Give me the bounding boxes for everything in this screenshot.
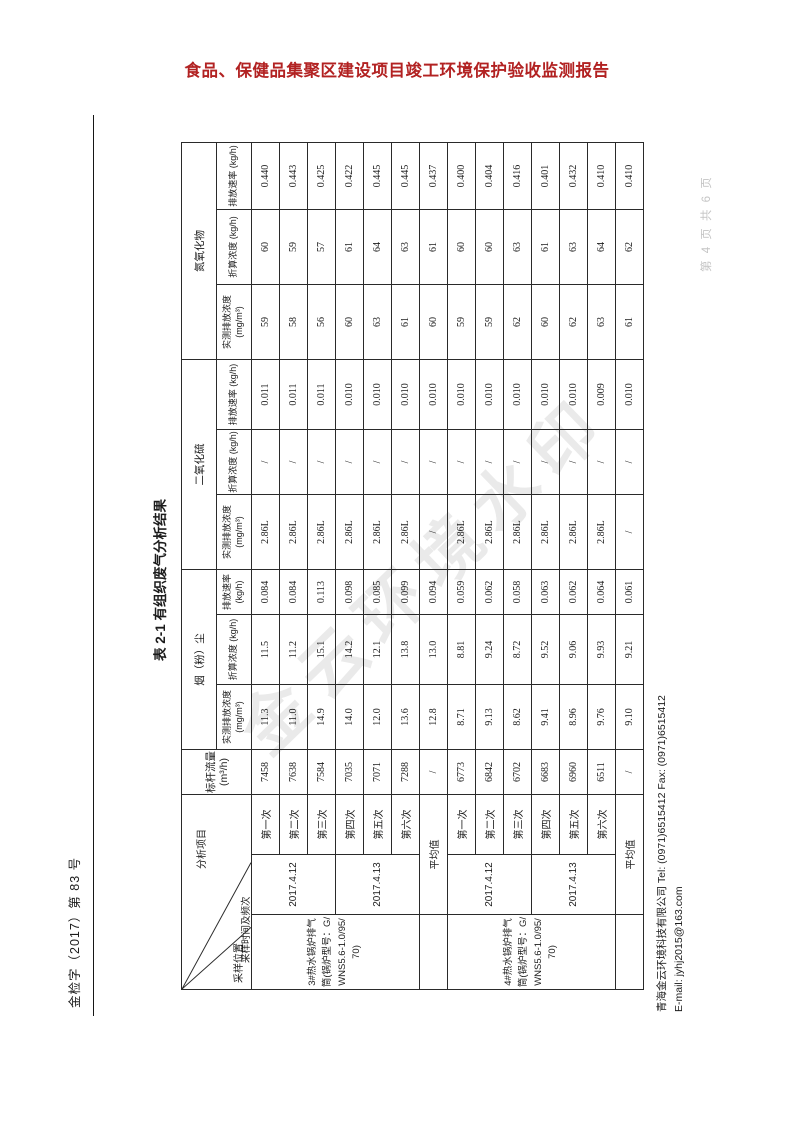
table-cell: 60 bbox=[420, 285, 448, 360]
location-empty-cell bbox=[420, 915, 448, 990]
table-cell: 9.93 bbox=[588, 615, 616, 685]
seq-cell: 第六次 bbox=[392, 795, 420, 855]
table-cell: 7288 bbox=[392, 750, 420, 795]
diag-label-time: 采样时间及频次 bbox=[238, 896, 252, 963]
table-cell: 59 bbox=[280, 210, 308, 285]
table-cell: 58 bbox=[280, 285, 308, 360]
table-cell: 0.063 bbox=[532, 570, 560, 615]
table-cell: / bbox=[308, 430, 336, 495]
table-cell: 0.062 bbox=[476, 570, 504, 615]
table-title: 表 2-1 有组织废气分析结果 bbox=[149, 140, 169, 1020]
rotated-landscape-content: 金检字（2017）第 83 号 表 2-1 有组织废气分析结果 采样位置 采样时… bbox=[57, 110, 737, 1020]
table-cell: 7638 bbox=[280, 750, 308, 795]
date-cell: 2017.4.13 bbox=[336, 855, 420, 915]
table-cell: 7458 bbox=[252, 750, 280, 795]
table-cell: 0.437 bbox=[420, 143, 448, 210]
diagonal-header-cell: 采样位置 采样时间及频次 分析项目 bbox=[182, 795, 252, 990]
table-cell: / bbox=[448, 430, 476, 495]
table-header-cell: 折算浓度 (kg/h) bbox=[217, 430, 252, 495]
table-cell: 0.084 bbox=[280, 570, 308, 615]
date-cell: 2017.4.12 bbox=[252, 855, 336, 915]
location-cell: 3#热水锅炉排气筒(锅炉型号：G/WNS5.6-1.0/95/70) bbox=[252, 915, 420, 990]
table-cell: 9.21 bbox=[616, 615, 644, 685]
footer-line-2: E-mail: jyhj2015@163.com bbox=[671, 695, 688, 1012]
table-cell: 2.86L bbox=[308, 495, 336, 570]
table-cell: 9.41 bbox=[532, 685, 560, 750]
table-cell: 0.113 bbox=[308, 570, 336, 615]
table-cell: 2.86L bbox=[532, 495, 560, 570]
table-cell: 7071 bbox=[364, 750, 392, 795]
table-cell: 11.0 bbox=[280, 685, 308, 750]
seq-cell: 第五次 bbox=[560, 795, 588, 855]
table-cell: 0.401 bbox=[532, 143, 560, 210]
table-cell: 0.010 bbox=[392, 360, 420, 430]
table-cell: 2.86L bbox=[280, 495, 308, 570]
table-cell: 61 bbox=[392, 285, 420, 360]
table-cell: / bbox=[336, 430, 364, 495]
table-cell: 6960 bbox=[560, 750, 588, 795]
table-cell: 57 bbox=[308, 210, 336, 285]
table-cell: 2.86L bbox=[252, 495, 280, 570]
table-cell: / bbox=[392, 430, 420, 495]
table-cell: 0.011 bbox=[252, 360, 280, 430]
location-empty-cell bbox=[616, 915, 644, 990]
table-cell: 61 bbox=[336, 210, 364, 285]
table-cell: 0.098 bbox=[336, 570, 364, 615]
table-cell: 8.96 bbox=[560, 685, 588, 750]
table-cell: 0.425 bbox=[308, 143, 336, 210]
table-cell: 0.064 bbox=[588, 570, 616, 615]
table-cell: 0.010 bbox=[336, 360, 364, 430]
table-header-group-nox: 氮氧化物 bbox=[182, 143, 217, 360]
table-cell: 63 bbox=[560, 210, 588, 285]
table-cell: 60 bbox=[252, 210, 280, 285]
table-header-cell: 实测排放浓度 (mg/m³) bbox=[217, 495, 252, 570]
table-cell: 0.422 bbox=[336, 143, 364, 210]
table-cell: / bbox=[420, 750, 448, 795]
table-cell: 9.24 bbox=[476, 615, 504, 685]
header-rule bbox=[93, 115, 94, 1016]
table-header-cell: 折算浓度 (kg/h) bbox=[217, 615, 252, 685]
table-cell: 2.86L bbox=[392, 495, 420, 570]
table-cell: 0.011 bbox=[280, 360, 308, 430]
table-cell: 9.06 bbox=[560, 615, 588, 685]
scanned-report-page: 食品、保健品集聚区建设项目竣工环境保护验收监测报告 金云环境水印 金检字（201… bbox=[0, 0, 794, 1122]
seq-cell: 第三次 bbox=[308, 795, 336, 855]
table-cell: 8.62 bbox=[504, 685, 532, 750]
table-header-cell: 实测排放浓度 (mg/m³) bbox=[217, 685, 252, 750]
table-cell: 0.445 bbox=[364, 143, 392, 210]
company-footer: 青海金云环境科技有限公司 Tel: (0971)6515412 Fax: (09… bbox=[654, 695, 688, 1012]
table-cell: 2.86L bbox=[588, 495, 616, 570]
table-cell: 0.011 bbox=[308, 360, 336, 430]
table-header-group-dust: 烟（粉）尘 bbox=[182, 570, 217, 750]
table-cell: 63 bbox=[392, 210, 420, 285]
table-cell: 0.094 bbox=[420, 570, 448, 615]
table-cell: 2.86L bbox=[336, 495, 364, 570]
seq-cell: 第一次 bbox=[448, 795, 476, 855]
table-cell: 13.8 bbox=[392, 615, 420, 685]
table-cell: 7584 bbox=[308, 750, 336, 795]
table-cell: 0.010 bbox=[560, 360, 588, 430]
table-header-cell: 排放速率 (kg/h) bbox=[217, 360, 252, 430]
table-cell: 62 bbox=[560, 285, 588, 360]
table-cell: / bbox=[504, 430, 532, 495]
table-cell: 0.099 bbox=[392, 570, 420, 615]
table-cell: 9.76 bbox=[588, 685, 616, 750]
table-cell: 56 bbox=[308, 285, 336, 360]
table-cell: / bbox=[560, 430, 588, 495]
table-cell: 61 bbox=[420, 210, 448, 285]
table-cell: 14.9 bbox=[308, 685, 336, 750]
table-header-cell: 折算浓度 (kg/h) bbox=[217, 210, 252, 285]
table-cell: 0.400 bbox=[448, 143, 476, 210]
table-cell: 63 bbox=[504, 210, 532, 285]
table-cell: 11.5 bbox=[252, 615, 280, 685]
table-cell: 2.86L bbox=[364, 495, 392, 570]
table-cell: / bbox=[420, 430, 448, 495]
table-cell: / bbox=[616, 750, 644, 795]
table-cell: 6773 bbox=[448, 750, 476, 795]
table-cell: / bbox=[532, 430, 560, 495]
table-cell: 60 bbox=[532, 285, 560, 360]
table-cell: 0.010 bbox=[616, 360, 644, 430]
table-cell: 0.059 bbox=[448, 570, 476, 615]
table-cell: / bbox=[588, 430, 616, 495]
table-cell: 6702 bbox=[504, 750, 532, 795]
diag-label-item: 分析项目 bbox=[193, 829, 208, 869]
table-cell: 0.010 bbox=[364, 360, 392, 430]
table-cell: 61 bbox=[616, 285, 644, 360]
seq-cell: 第五次 bbox=[364, 795, 392, 855]
table-cell: 2.86L bbox=[476, 495, 504, 570]
table-cell: / bbox=[616, 430, 644, 495]
table-cell: 59 bbox=[252, 285, 280, 360]
table-cell: 62 bbox=[504, 285, 532, 360]
table-cell: / bbox=[616, 495, 644, 570]
results-table: 采样位置 采样时间及频次 分析项目 标杆流量 (m³/h) 烟（粉）尘 二氧化硫… bbox=[181, 142, 644, 990]
table-cell: 0.058 bbox=[504, 570, 532, 615]
seq-cell: 第三次 bbox=[504, 795, 532, 855]
date-cell: 2017.4.12 bbox=[448, 855, 532, 915]
table-header-cell: 排放速率 (kg/h) bbox=[217, 570, 252, 615]
table-cell: 0.010 bbox=[420, 360, 448, 430]
table-cell: 13.6 bbox=[392, 685, 420, 750]
page-number: 第 4 页 共 6 页 bbox=[698, 175, 714, 272]
table-cell: 15.1 bbox=[308, 615, 336, 685]
table-cell: / bbox=[252, 430, 280, 495]
seq-cell: 第二次 bbox=[476, 795, 504, 855]
table-cell: 8.72 bbox=[504, 615, 532, 685]
table-cell: 0.410 bbox=[588, 143, 616, 210]
table-cell: 8.81 bbox=[448, 615, 476, 685]
table-cell: 59 bbox=[476, 285, 504, 360]
date-cell: 2017.4.13 bbox=[532, 855, 616, 915]
seq-cell: 第二次 bbox=[280, 795, 308, 855]
table-cell: 64 bbox=[364, 210, 392, 285]
table-cell: 60 bbox=[448, 210, 476, 285]
table-cell: 2.86L bbox=[504, 495, 532, 570]
table-cell: 60 bbox=[476, 210, 504, 285]
table-cell: 6842 bbox=[476, 750, 504, 795]
table-cell: 0.010 bbox=[504, 360, 532, 430]
avg-cell: 平均值 bbox=[420, 795, 448, 915]
table-cell: 63 bbox=[364, 285, 392, 360]
table-cell: 0.440 bbox=[252, 143, 280, 210]
table-cell: 12.1 bbox=[364, 615, 392, 685]
table-cell: 11.2 bbox=[280, 615, 308, 685]
seq-cell: 第四次 bbox=[532, 795, 560, 855]
table-cell: 9.13 bbox=[476, 685, 504, 750]
table-cell: 9.52 bbox=[532, 615, 560, 685]
table-cell: 0.416 bbox=[504, 143, 532, 210]
document-header: 食品、保健品集聚区建设项目竣工环境保护验收监测报告 bbox=[0, 57, 794, 81]
table-cell: 2.86L bbox=[560, 495, 588, 570]
table-cell: 62 bbox=[616, 210, 644, 285]
table-header-cell: 排放速率 (kg/h) bbox=[217, 143, 252, 210]
table-cell: 0.445 bbox=[392, 143, 420, 210]
table-cell: 13.0 bbox=[420, 615, 448, 685]
seq-cell: 第四次 bbox=[336, 795, 364, 855]
table-header-cell-flow: 标杆流量 (m³/h) bbox=[182, 750, 252, 795]
table-cell: 8.71 bbox=[448, 685, 476, 750]
table-cell: 11.3 bbox=[252, 685, 280, 750]
table-cell: 14.2 bbox=[336, 615, 364, 685]
table-cell: 63 bbox=[588, 285, 616, 360]
table-cell: 2.86L bbox=[448, 495, 476, 570]
table-cell: 0.010 bbox=[532, 360, 560, 430]
seq-cell: 第一次 bbox=[252, 795, 280, 855]
footer-line-1: 青海金云环境科技有限公司 Tel: (0971)6515412 Fax: (09… bbox=[654, 695, 671, 1012]
table-cell: 64 bbox=[588, 210, 616, 285]
table-cell: 0.432 bbox=[560, 143, 588, 210]
table-cell: 0.410 bbox=[616, 143, 644, 210]
location-cell: 4#热水锅炉排气筒(锅炉型号：G/WNS5.6-1.0/95/70) bbox=[448, 915, 616, 990]
table-cell: 0.084 bbox=[252, 570, 280, 615]
table-cell: 12.0 bbox=[364, 685, 392, 750]
avg-cell: 平均值 bbox=[616, 795, 644, 915]
table-cell: 59 bbox=[448, 285, 476, 360]
table-cell: 0.010 bbox=[476, 360, 504, 430]
table-cell: 0.443 bbox=[280, 143, 308, 210]
table-cell: 0.010 bbox=[448, 360, 476, 430]
table-cell: 6511 bbox=[588, 750, 616, 795]
table-cell: 0.085 bbox=[364, 570, 392, 615]
table-cell: 0.404 bbox=[476, 143, 504, 210]
table-cell: 7035 bbox=[336, 750, 364, 795]
table-cell: 9.10 bbox=[616, 685, 644, 750]
reference-number: 金检字（2017）第 83 号 bbox=[64, 857, 83, 1008]
table-cell: 6683 bbox=[532, 750, 560, 795]
table-cell: 14.0 bbox=[336, 685, 364, 750]
table-cell: / bbox=[364, 430, 392, 495]
table-cell: 0.062 bbox=[560, 570, 588, 615]
seq-cell: 第六次 bbox=[588, 795, 616, 855]
table-header-cell: 实测排放浓度 (mg/m³) bbox=[217, 285, 252, 360]
table-cell: 60 bbox=[336, 285, 364, 360]
table-cell: 12.8 bbox=[420, 685, 448, 750]
table-header-group-so2: 二氧化硫 bbox=[182, 360, 217, 570]
table-cell: / bbox=[420, 495, 448, 570]
table-cell: 61 bbox=[532, 210, 560, 285]
table-cell: 0.009 bbox=[588, 360, 616, 430]
table-cell: / bbox=[476, 430, 504, 495]
table-cell: / bbox=[280, 430, 308, 495]
table-cell: 0.061 bbox=[616, 570, 644, 615]
